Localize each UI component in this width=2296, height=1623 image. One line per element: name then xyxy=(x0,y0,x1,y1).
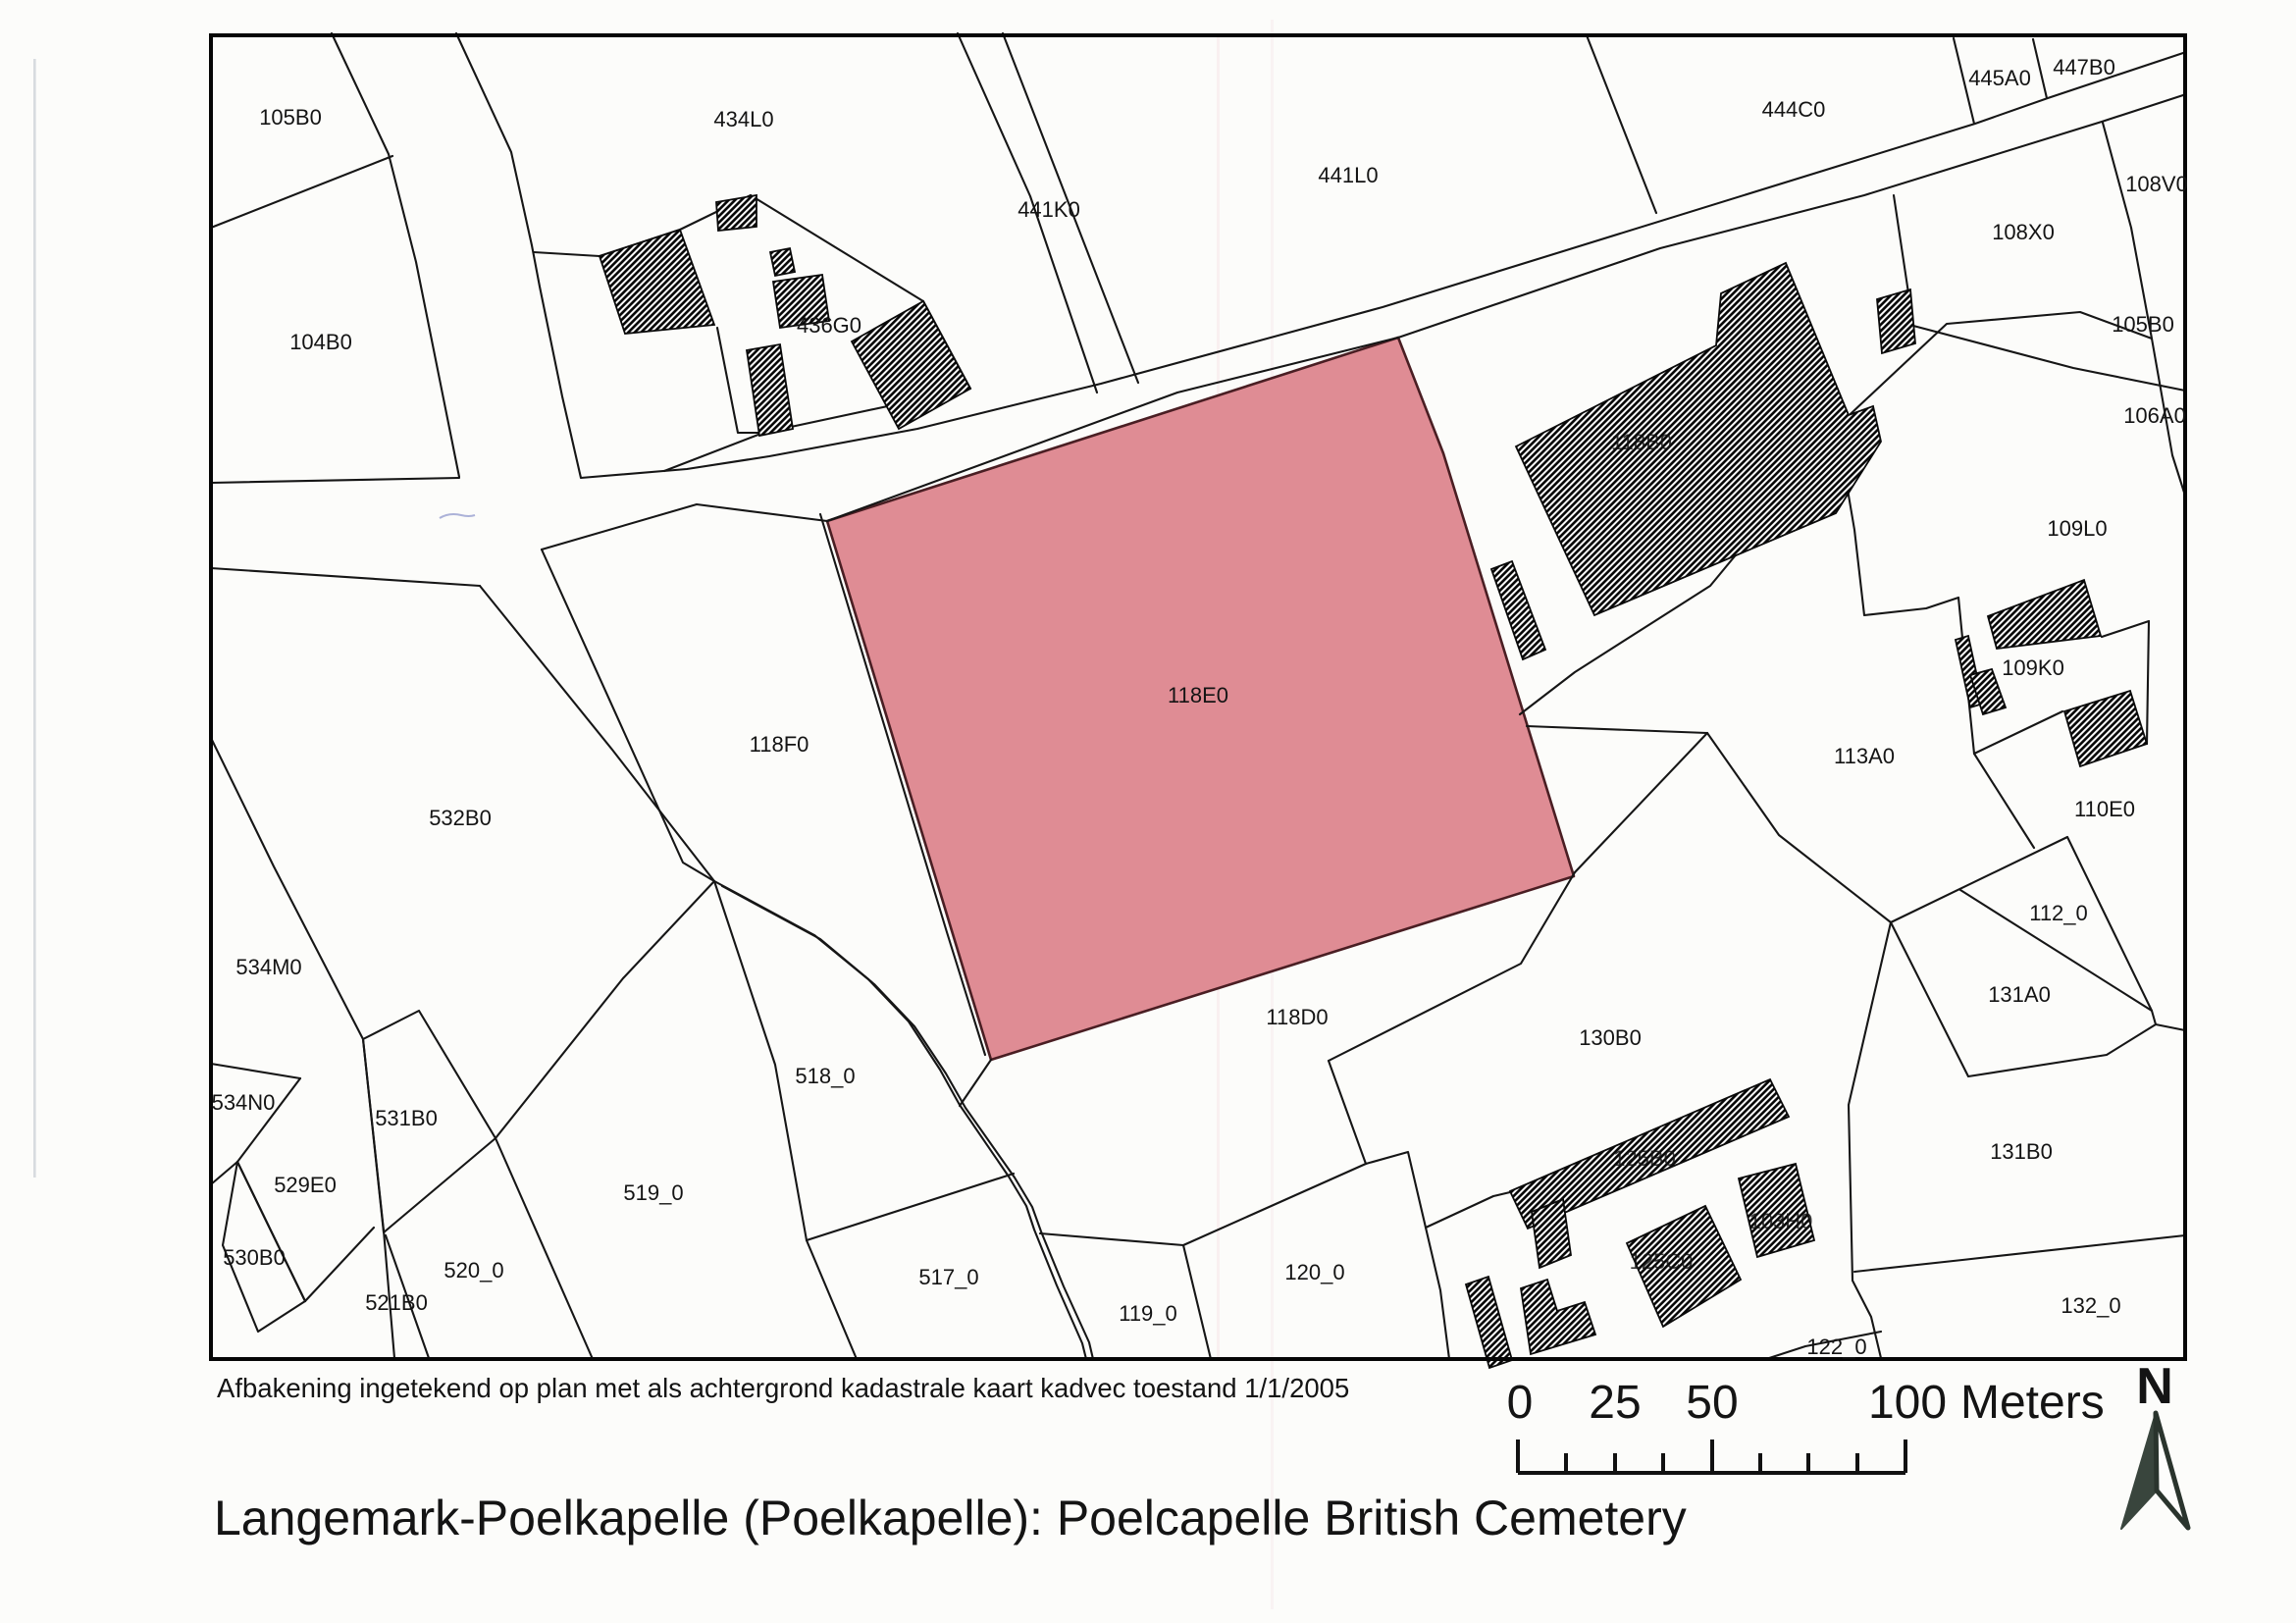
svg-text:130B0: 130B0 xyxy=(1579,1025,1642,1050)
svg-text:441K0: 441K0 xyxy=(1018,197,1080,222)
svg-text:105B0: 105B0 xyxy=(259,105,322,130)
svg-text:532B0: 532B0 xyxy=(429,806,492,830)
svg-text:444C0: 444C0 xyxy=(1762,97,1826,122)
svg-text:100: 100 xyxy=(1868,1377,1947,1429)
svg-text:108X0: 108X0 xyxy=(1992,220,2055,244)
svg-text:519_0: 519_0 xyxy=(623,1180,683,1205)
svg-text:N: N xyxy=(2136,1358,2173,1415)
svg-text:445A0: 445A0 xyxy=(1968,66,2031,90)
svg-text:119_0: 119_0 xyxy=(1119,1301,1177,1326)
svg-text:534M0: 534M0 xyxy=(235,955,301,979)
svg-text:105B0: 105B0 xyxy=(2112,312,2174,337)
svg-text:109L0: 109L0 xyxy=(2047,516,2107,541)
svg-text:125C0: 125C0 xyxy=(1630,1249,1694,1274)
svg-text:531B0: 531B0 xyxy=(375,1106,438,1130)
svg-text:436G0: 436G0 xyxy=(797,313,861,338)
svg-text:518_0: 518_0 xyxy=(795,1064,855,1088)
svg-text:118F0: 118F0 xyxy=(750,732,809,757)
svg-text:113A0: 113A0 xyxy=(1834,744,1895,768)
svg-text:521B0: 521B0 xyxy=(365,1290,428,1315)
svg-text:132_0: 132_0 xyxy=(2061,1293,2120,1318)
svg-text:520_0: 520_0 xyxy=(444,1258,503,1283)
svg-text:Meters: Meters xyxy=(1960,1377,2105,1429)
svg-text:118D0: 118D0 xyxy=(1266,1005,1328,1029)
svg-text:118E0: 118E0 xyxy=(1168,683,1228,707)
svg-text:122_0: 122_0 xyxy=(1806,1335,1866,1359)
svg-text:131A0: 131A0 xyxy=(1988,982,2051,1007)
svg-text:529E0: 529E0 xyxy=(274,1173,337,1197)
svg-text:Langemark-Poelkapelle (Poelkap: Langemark-Poelkapelle (Poelkapelle): Poe… xyxy=(214,1491,1687,1545)
svg-text:109K0: 109K0 xyxy=(2002,655,2064,680)
svg-text:530B0: 530B0 xyxy=(223,1245,286,1270)
svg-text:0: 0 xyxy=(1507,1377,1534,1429)
svg-text:108V0: 108V0 xyxy=(2125,172,2188,196)
svg-text:104B0: 104B0 xyxy=(289,330,352,354)
svg-text:125B0: 125B0 xyxy=(1613,1146,1676,1171)
svg-text:103H0: 103H0 xyxy=(1749,1209,1813,1233)
svg-text:434L0: 434L0 xyxy=(713,107,773,131)
svg-text:441L0: 441L0 xyxy=(1318,163,1378,187)
svg-text:447B0: 447B0 xyxy=(2053,55,2115,79)
svg-text:118B0: 118B0 xyxy=(1611,430,1672,454)
svg-text:50: 50 xyxy=(1686,1377,1738,1429)
svg-text:110E0: 110E0 xyxy=(2074,797,2135,821)
svg-text:120_0: 120_0 xyxy=(1284,1260,1344,1284)
svg-text:25: 25 xyxy=(1589,1377,1641,1429)
svg-text:112_0: 112_0 xyxy=(2029,901,2088,925)
svg-text:131B0: 131B0 xyxy=(1990,1139,2053,1164)
svg-text:517_0: 517_0 xyxy=(918,1265,978,1289)
svg-text:Afbakening ingetekend op plan: Afbakening ingetekend op plan met als ac… xyxy=(217,1373,1349,1403)
svg-text:534N0: 534N0 xyxy=(212,1090,276,1115)
svg-text:106A0: 106A0 xyxy=(2123,403,2186,428)
